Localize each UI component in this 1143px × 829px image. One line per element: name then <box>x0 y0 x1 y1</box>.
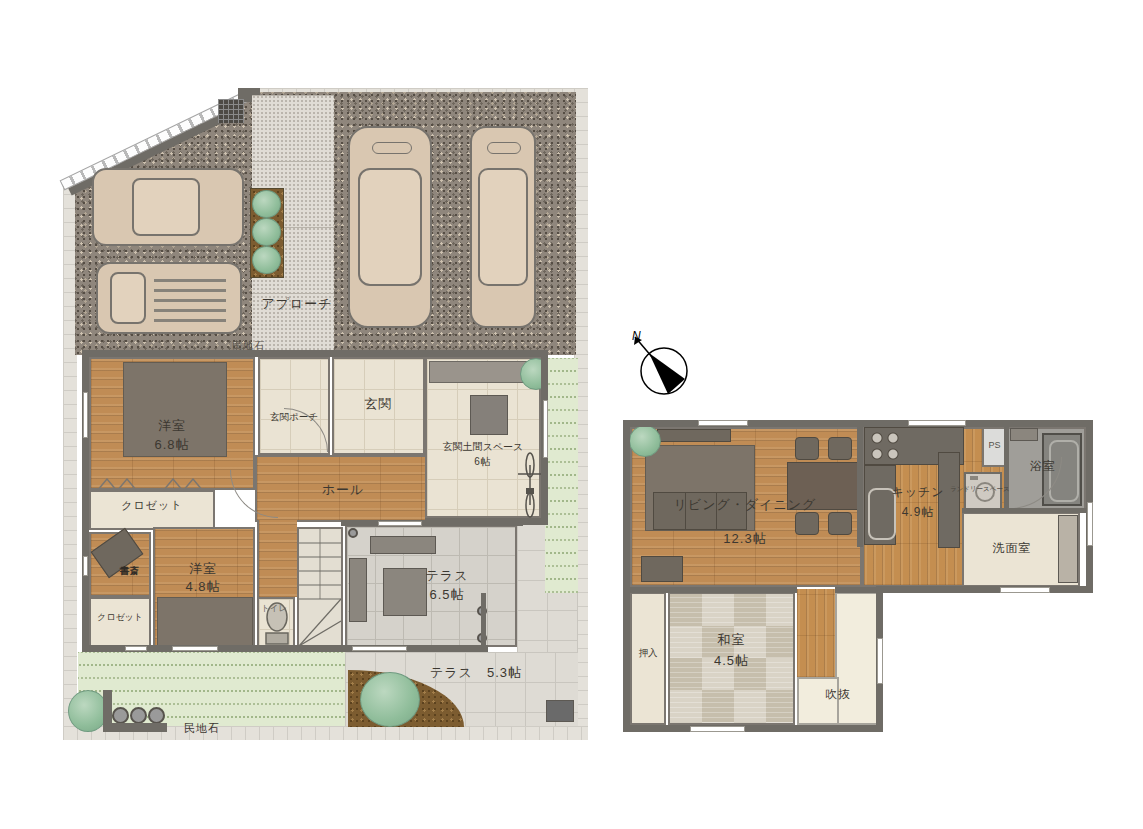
planter-bush-icon <box>252 190 281 218</box>
f2-wall-bottom-main <box>876 586 1093 593</box>
terrace-1-size: 6.5帖 <box>392 588 502 602</box>
terrace-2-label: テラス 5.3帖 <box>430 666 522 680</box>
sidewalk-left <box>63 180 77 726</box>
room-closet-2 <box>89 597 151 650</box>
entrance-label: 玄関 <box>332 397 425 411</box>
hall-corridor <box>257 520 297 597</box>
window <box>698 420 748 426</box>
hall-label: ホール <box>300 483 386 497</box>
oshiire-label: 押入 <box>630 648 666 658</box>
f2-wall-top <box>623 420 1093 427</box>
doma-cabinet <box>470 395 508 435</box>
floorplan-page: アプローチ 民地石 洋室 6.8帖 クロゼット 玄関ポーチ 玄関 玄関土間スペー… <box>0 0 1143 829</box>
terrace-sofa-side <box>349 558 367 622</box>
living-size: 12.3帖 <box>630 532 860 546</box>
approach-label: アプローチ <box>256 297 338 311</box>
void-label: 吹抜 <box>800 688 876 701</box>
hall-strip-2f <box>797 589 835 677</box>
living-plant-icon <box>629 425 661 457</box>
window <box>908 420 966 426</box>
stepping-stone <box>112 707 129 724</box>
bath-sink <box>1010 428 1038 441</box>
western-1-label: 洋室 <box>105 419 239 433</box>
stairs-treads-icon <box>299 529 341 648</box>
porch-label: 玄関ポーチ <box>256 412 332 422</box>
car-vertical-1-icon <box>348 126 432 328</box>
closet-door-zigzag-icon <box>95 478 205 492</box>
car-wagon-icon <box>96 262 242 334</box>
car-sedan-icon <box>92 168 244 246</box>
toilet-label: トイレ <box>261 604 287 613</box>
garden-plant-icon <box>68 690 108 732</box>
stone-top-label: 民地石 <box>232 340 265 351</box>
tv-icon <box>657 429 731 442</box>
western-2-size: 4.8帖 <box>153 580 253 594</box>
window <box>125 646 147 651</box>
tv-board-icon <box>641 556 683 582</box>
hall-door-arc <box>230 470 278 518</box>
room-oshiire <box>630 592 666 725</box>
closet-2-label: クロゼット <box>89 613 151 623</box>
terrace-1-label: テラス <box>392 569 502 583</box>
terrace-sofa-back <box>370 536 436 554</box>
japanese-room-size: 4.5帖 <box>668 654 795 668</box>
dining-chair-icon <box>795 437 819 460</box>
window <box>1087 502 1093 546</box>
japanese-room-label: 和室 <box>668 633 795 647</box>
western-2-label: 洋室 <box>153 562 253 576</box>
dining-chair-icon <box>828 437 852 460</box>
garden-wall-h <box>103 723 167 732</box>
garden-bush-icon <box>360 672 420 727</box>
window <box>83 392 88 438</box>
kitchen-pantry <box>938 452 960 548</box>
f2-wall-bottom-lower <box>623 725 883 732</box>
window <box>877 638 883 684</box>
window <box>352 646 407 651</box>
western-2-rug <box>157 597 253 649</box>
stepping-stone <box>148 707 165 724</box>
stepping-stone <box>130 707 147 724</box>
study-label: 書斎 <box>120 566 139 576</box>
f2-wall-washroom-top <box>962 508 1087 513</box>
stove-icon <box>868 430 902 462</box>
f2-wall-mid-a <box>623 587 797 593</box>
f2-wall-left <box>623 420 630 732</box>
window <box>690 726 745 732</box>
f2-wall-kitchen-left <box>857 427 863 547</box>
window <box>378 521 422 526</box>
room-void <box>835 592 882 725</box>
car-vertical-2-icon <box>470 126 536 328</box>
grate-icon <box>218 99 244 123</box>
utility-box <box>546 700 574 722</box>
planter-bush-icon <box>252 218 281 246</box>
living-label: リビング・ダイニング <box>630 498 860 512</box>
stone-bottom-label: 民地石 <box>184 722 220 734</box>
window <box>83 556 88 576</box>
terrace-post <box>348 528 358 538</box>
north-label: N <box>632 330 642 343</box>
window <box>172 646 218 651</box>
side-lawn-strip <box>545 358 578 593</box>
western-1-size: 6.8帖 <box>105 438 239 452</box>
doma-size: 6帖 <box>425 456 541 467</box>
f1-wall-top <box>82 350 548 357</box>
f1-wall-terrace-top <box>341 520 523 526</box>
planter-bush-icon <box>252 246 281 274</box>
closet-1-label: クロゼット <box>89 499 215 511</box>
window <box>1000 587 1050 593</box>
kitchen-size: 4.9帖 <box>872 506 964 519</box>
f2-wall-mid-b <box>835 587 883 593</box>
doma-label: 玄関土間スペース <box>425 441 541 452</box>
washroom-label: 洗面室 <box>962 542 1062 555</box>
bath-label: 浴室 <box>1005 460 1081 473</box>
laundry-label: ランドリースペース <box>950 485 1010 492</box>
window <box>543 400 548 458</box>
ps-label: PS <box>982 441 1007 451</box>
